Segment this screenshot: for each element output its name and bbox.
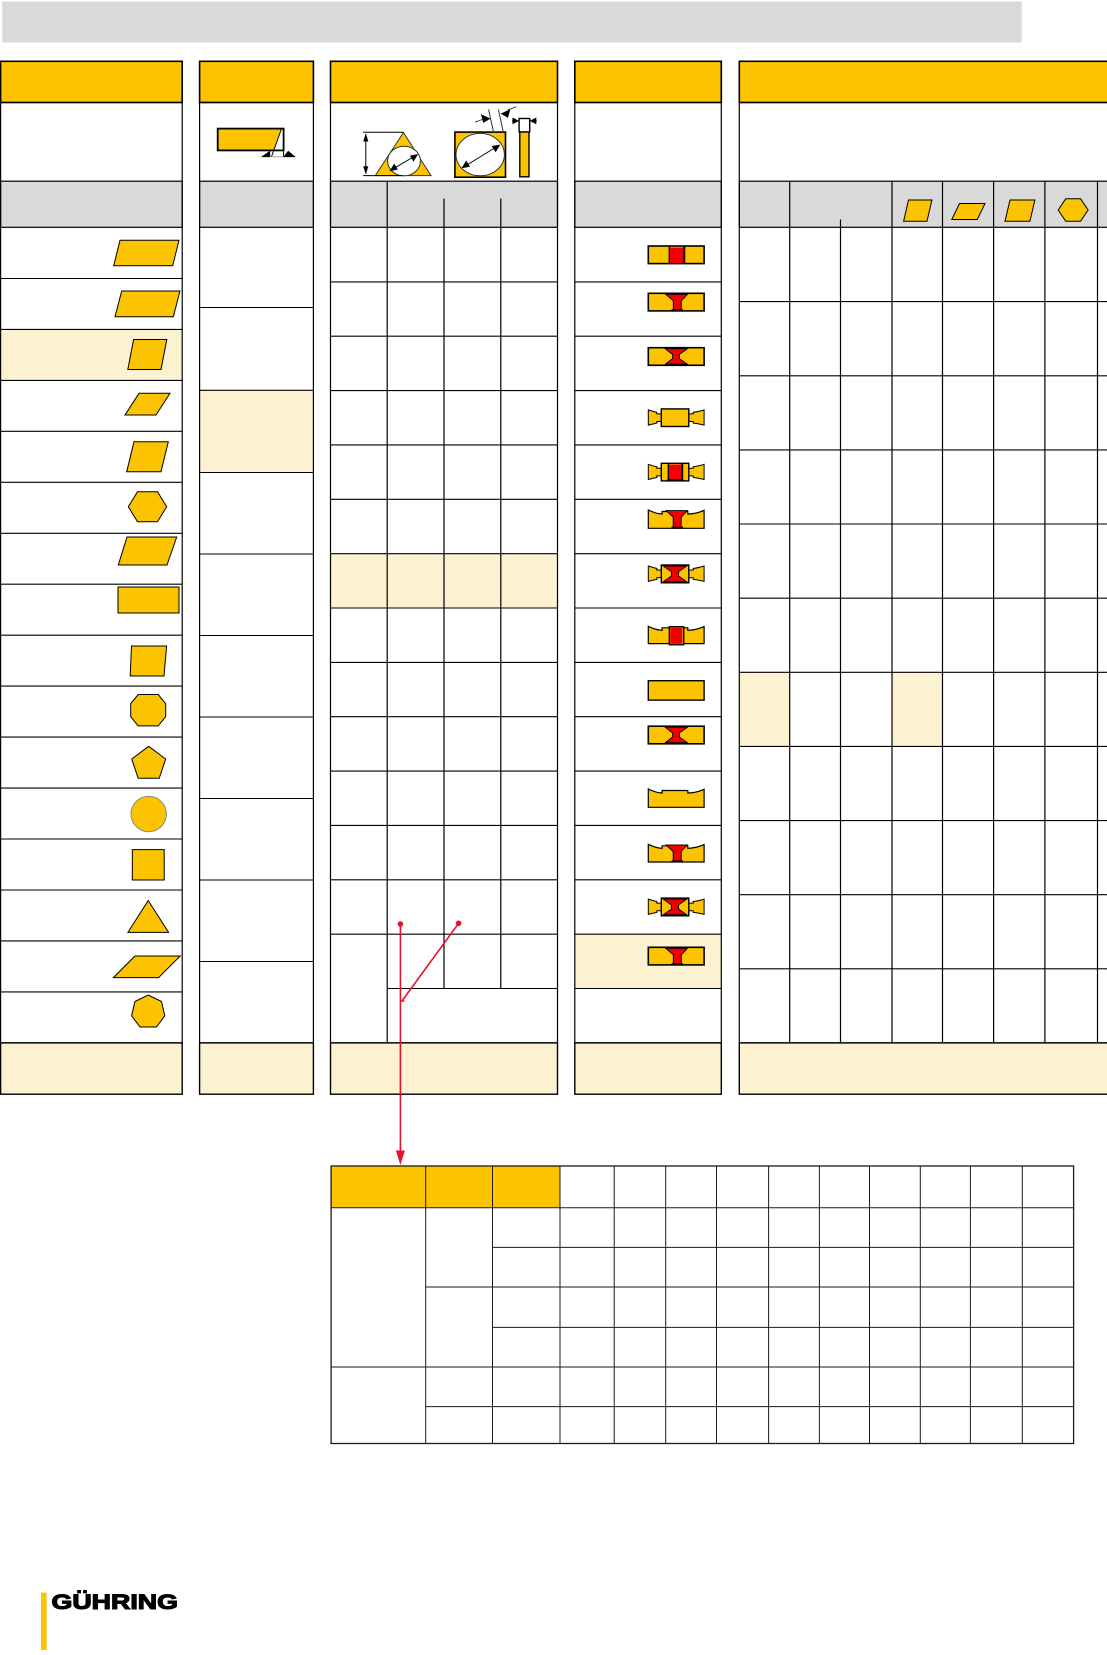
- svg-text:GÜHRING: GÜHRING: [52, 1591, 179, 1614]
